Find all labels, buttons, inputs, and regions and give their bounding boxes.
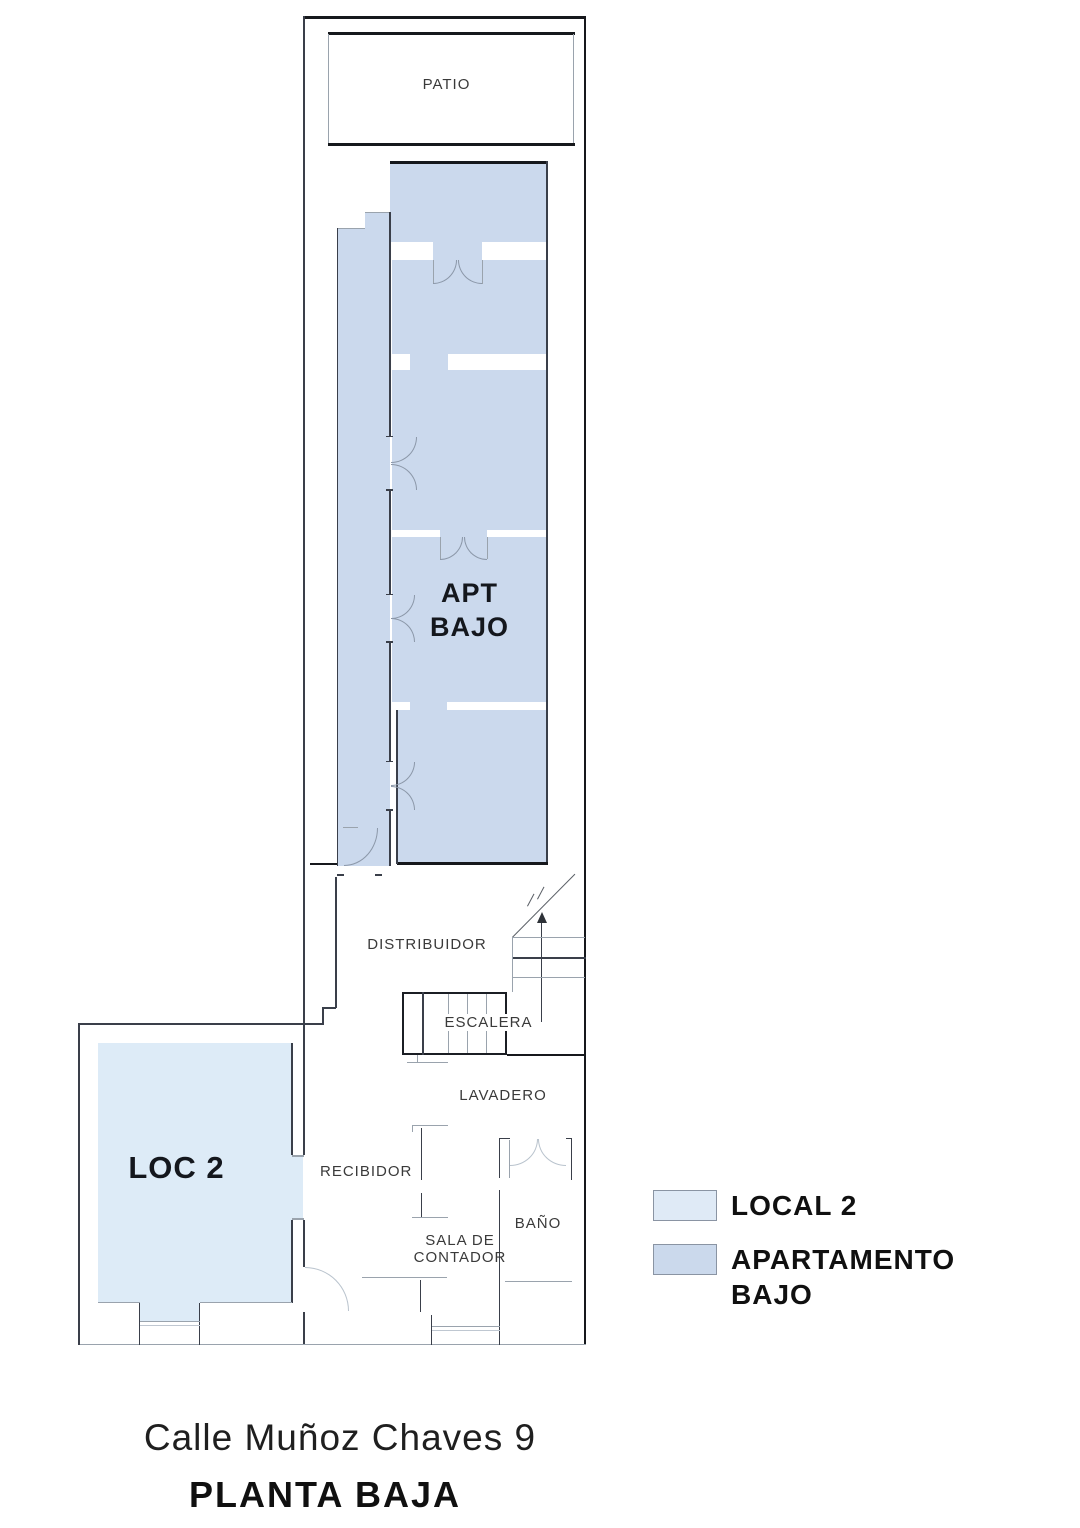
room-label-sala-de-contador: SALA DE CONTADOR — [408, 1232, 512, 1266]
stair-flight-line — [512, 874, 575, 938]
wall-below-stairs — [507, 1054, 586, 1056]
wall-loc2-entry-left — [139, 1303, 140, 1345]
wall-step-h — [322, 1007, 336, 1009]
room-label-lavadero: LAVADERO — [447, 1087, 559, 1104]
wall-loc2-bottom-right — [200, 1302, 292, 1303]
legend-label-apartamento-line1: APARTAMENTO — [731, 1242, 955, 1277]
room-label-recibidor: RECIBIDOR — [320, 1163, 404, 1180]
wall-corridor-top — [338, 228, 365, 229]
stair-break-mark — [537, 887, 544, 900]
wall-corridor-step-top — [365, 212, 390, 213]
wall-apartment-bottom — [397, 862, 548, 865]
room-label-sala-line2: CONTADOR — [408, 1249, 512, 1266]
stair-break-mark — [527, 894, 534, 907]
door-opening-fill — [440, 530, 487, 537]
wall-loc2-entry-right — [199, 1303, 200, 1345]
room-label-distribuidor: DISTRIBUIDOR — [332, 936, 522, 953]
legend-label-apartamento-line2: BAJO — [731, 1277, 955, 1312]
door-arc — [510, 1139, 538, 1166]
legend-swatch-local2 — [653, 1190, 717, 1221]
door-opening-fill — [410, 354, 448, 370]
wall-outer-left-mid — [303, 1220, 305, 1267]
wall-bano-left-lower — [499, 1190, 500, 1345]
door-arc — [538, 1139, 566, 1166]
wall-apartment-right — [546, 161, 548, 864]
lavadero-door-tick-v — [417, 1055, 418, 1063]
loc2-entry-door-line — [140, 1325, 200, 1326]
door-jamb — [509, 1140, 510, 1178]
room-fill-apartment-5 — [397, 710, 547, 862]
room-fill-apartment-3 — [392, 370, 547, 530]
wall-loc2-bottom-left — [98, 1302, 140, 1303]
patio-wall-right — [573, 34, 574, 143]
wall-tick — [412, 1217, 448, 1218]
door-opening-fill — [410, 702, 447, 710]
wall-loc2-outer-left — [78, 1023, 80, 1345]
entrance-door-line — [432, 1330, 500, 1331]
loc2-entry-door-line — [140, 1321, 200, 1322]
wall-bano-left-upper — [499, 1138, 500, 1178]
corridor-fill — [338, 228, 390, 866]
room-label-apt-line1: APT — [392, 576, 547, 610]
room-label-apt-line2: BAJO — [392, 610, 547, 644]
wall-corridor-right-2 — [389, 490, 391, 595]
corridor-step-fill — [365, 212, 390, 228]
door-arc-entrance — [305, 1267, 349, 1311]
room-label-sala-line1: SALA DE — [408, 1232, 512, 1249]
door-jamb — [375, 874, 382, 876]
entrance-door-line — [432, 1326, 500, 1327]
room-fill-apartment-1 — [390, 163, 547, 242]
wall-corridor-right-3 — [389, 642, 391, 762]
wall-sala-left-lower — [421, 1193, 422, 1218]
wall-step-v — [322, 1007, 324, 1024]
room-fill-local2-entry — [140, 1303, 200, 1322]
stair-tread — [512, 977, 585, 978]
lavadero-door-tick-h — [407, 1062, 448, 1063]
door-opening-fill — [433, 242, 482, 260]
room-label-bano: BAÑO — [504, 1215, 572, 1232]
stair-tread — [422, 992, 424, 1055]
wall-tick — [412, 1125, 413, 1132]
wall-loc2-right-lower — [291, 1220, 293, 1303]
door-jamb — [292, 1155, 304, 1157]
stair-direction-arrow-head — [537, 912, 547, 923]
wall-outer-bottom — [78, 1344, 586, 1345]
wall-bano-top-left — [499, 1138, 510, 1139]
wall-apartment-top — [390, 161, 548, 164]
door-jamb — [292, 1218, 304, 1220]
floor-title: PLANTA BAJA — [60, 1473, 590, 1517]
patio-wall-top — [328, 32, 575, 35]
wall-bano-right — [571, 1138, 572, 1180]
patio-wall-bottom — [328, 143, 575, 146]
wall-corridor-right-1 — [389, 212, 391, 437]
legend-label-local2: LOCAL 2 — [731, 1190, 857, 1221]
room-label-patio: PATIO — [325, 76, 568, 93]
wall-bano-bottom — [505, 1281, 572, 1282]
wall-sala-left-upper — [421, 1128, 422, 1180]
room-fill-local2-connector — [292, 1157, 303, 1218]
legend-label-apartamento: APARTAMENTO BAJO — [731, 1242, 955, 1312]
wall-outer-top — [303, 16, 586, 19]
wall-outer-right — [584, 16, 586, 1345]
legend-swatch-apartamento — [653, 1244, 717, 1275]
room-label-apt-bajo: APT BAJO — [392, 576, 547, 644]
address-title: Calle Muñoz Chaves 9 — [60, 1418, 620, 1458]
wall-entrance-v1 — [420, 1280, 421, 1312]
room-label-escalera: ESCALERA — [441, 1014, 536, 1031]
stair-tread — [512, 937, 585, 938]
wall-loc2-outer-top — [78, 1023, 324, 1025]
wall-apartment-bottom-left — [310, 863, 338, 865]
floor-plan-page: PATIO APT BAJO — [0, 0, 1080, 1528]
room-label-loc2: LOC 2 — [98, 1151, 255, 1185]
door-jamb — [337, 874, 344, 876]
wall-loc2-right-upper — [291, 1043, 293, 1155]
wall-corridor-right-4 — [389, 810, 391, 866]
wall-outer-left-upper — [303, 16, 305, 1155]
wall-corridor-left — [337, 228, 338, 866]
wall-tick — [412, 1125, 448, 1126]
wall-recibidor-bottom — [362, 1277, 447, 1278]
stair-tread — [512, 957, 586, 959]
wall-outer-left-lower — [303, 1312, 305, 1345]
